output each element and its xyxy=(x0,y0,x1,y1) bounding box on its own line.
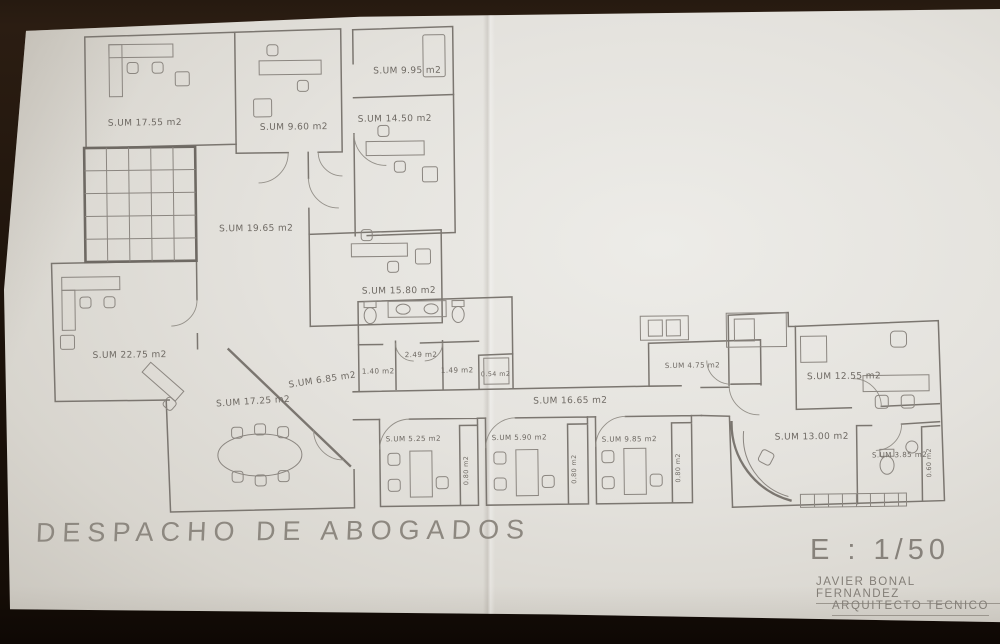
plan-door-arcs xyxy=(169,127,902,462)
plan-title: DESPACHO DE ABOGADOS xyxy=(35,514,532,548)
room-area-label: 2.49 m2 xyxy=(405,350,438,359)
plan-scale: E : 1/50 xyxy=(810,534,950,567)
room-area-label: S.UM 5.90 m2 xyxy=(492,432,547,442)
room-area-label: S.UM 9.60 m2 xyxy=(260,122,328,133)
room-area-label: S.UM 19.65 m2 xyxy=(219,224,293,235)
room-area-label: 0.80 m2 xyxy=(674,453,682,482)
room-area-label: S.UM 4.75 m2 xyxy=(665,360,720,370)
room-area-label: 1.40 m2 xyxy=(362,366,395,375)
plan-furniture xyxy=(57,29,931,517)
skylight-grid xyxy=(84,147,196,262)
room-area-label: S.UM 14.50 m2 xyxy=(358,114,432,125)
room-area-label: S.UM 16.65 m2 xyxy=(533,396,607,407)
room-area-label: S.UM 9.95 m2 xyxy=(373,66,441,77)
room-area-label: S.UM 17.25 m2 xyxy=(216,395,291,410)
room-area-label: S.UM 22.75 m2 xyxy=(93,350,167,361)
room-area-label: S.UM 17.55 m2 xyxy=(108,118,182,129)
room-area-label: 0.80 m2 xyxy=(462,456,470,485)
plan-author-title: ARQUITECTO TECNICO xyxy=(832,600,989,616)
room-area-label: S.UM 6.85 m2 xyxy=(288,370,357,390)
room-area-label: S.UM 3.85 m2 xyxy=(872,450,927,460)
room-area-label: 0.60 m2 xyxy=(925,448,933,477)
room-area-label: 0.80 m2 xyxy=(570,454,578,483)
room-area-label: S.UM 15.80 m2 xyxy=(362,286,436,297)
room-area-label: S.UM 12.55 m2 xyxy=(807,371,881,382)
photo-background: S.UM 17.55 m2 S.UM 9.60 m2 S.UM 9.95 m2 … xyxy=(0,0,1000,644)
room-area-label: 0.54 m2 xyxy=(481,370,510,378)
room-area-label: S.UM 9.85 m2 xyxy=(602,434,657,444)
room-area-labels: S.UM 17.55 m2 S.UM 9.60 m2 S.UM 9.95 m2 … xyxy=(89,60,933,490)
room-area-label: S.UM 13.00 m2 xyxy=(775,432,849,443)
room-area-label: 1.49 m2 xyxy=(441,365,474,374)
room-area-label: S.UM 5.25 m2 xyxy=(386,434,441,444)
